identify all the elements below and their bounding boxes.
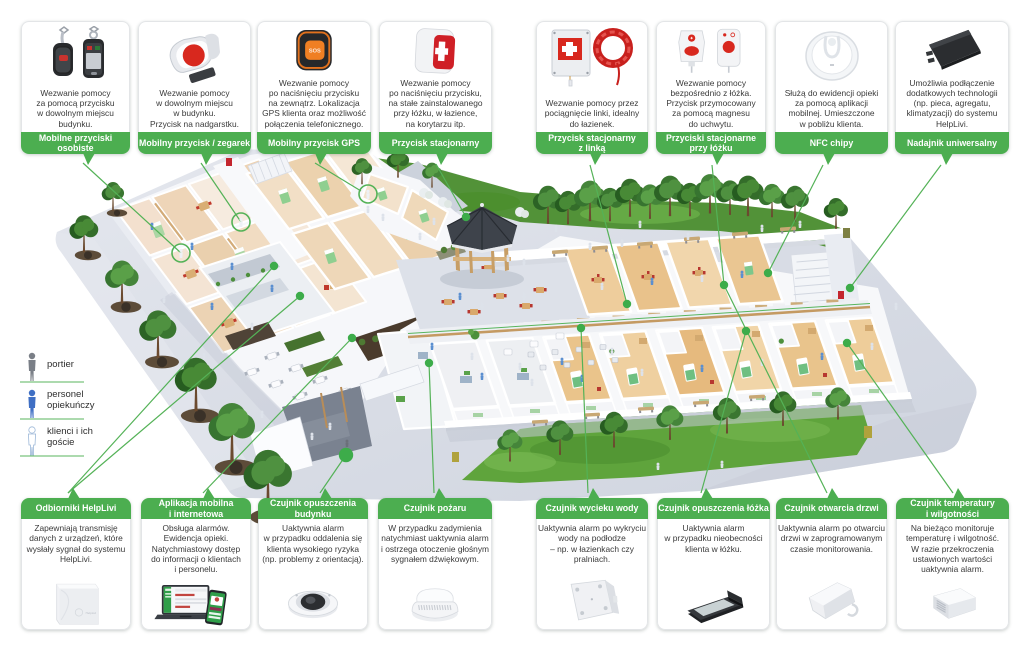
svg-text:personel: personel	[47, 389, 83, 400]
svg-text:HelpLivi: HelpLivi	[86, 611, 97, 615]
svg-text:goście: goście	[47, 437, 74, 448]
svg-text:klienci i ich: klienci i ich	[47, 426, 93, 437]
svg-text:portier: portier	[47, 359, 74, 370]
svg-text:SOS: SOS	[309, 49, 321, 55]
svg-text:opiekuńczy: opiekuńczy	[47, 400, 95, 411]
